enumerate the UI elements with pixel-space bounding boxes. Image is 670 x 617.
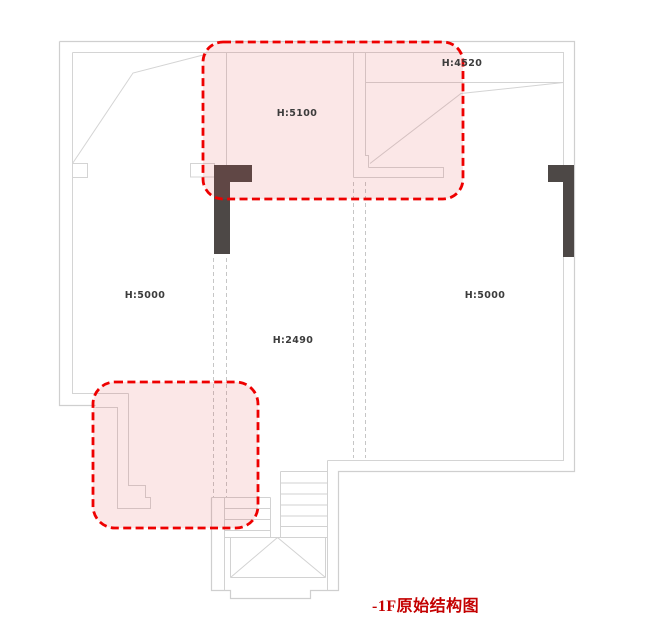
- highlight-region-bottom-left: [93, 382, 258, 528]
- column-right: [548, 165, 574, 257]
- inner-wall-left-lower: [73, 178, 129, 394]
- stair-flight-right: [281, 472, 328, 538]
- outer-wall-left: [60, 42, 96, 406]
- door-opening-cap-left: [73, 164, 88, 178]
- height-label-center-area: H:2490: [273, 335, 314, 346]
- floor-plan-canvas: H:4520 H:5100 H:5000 H:5000 H:2490 -1F原始…: [0, 0, 670, 617]
- height-label-left-area: H:5000: [125, 290, 166, 301]
- height-label-top-center-room: H:5100: [277, 108, 318, 119]
- drawing-title: -1F原始结构图: [372, 592, 479, 616]
- height-label-top-right-room: H:4520: [442, 58, 483, 69]
- floor-plan-drawing: H:4520 H:5100 H:5000 H:5000 H:2490: [0, 0, 670, 617]
- stair-landing: [225, 538, 328, 578]
- highlight-region-top: [203, 42, 463, 199]
- height-label-right-area: H:5000: [465, 290, 506, 301]
- ramp-slope-lines-left: [73, 54, 208, 164]
